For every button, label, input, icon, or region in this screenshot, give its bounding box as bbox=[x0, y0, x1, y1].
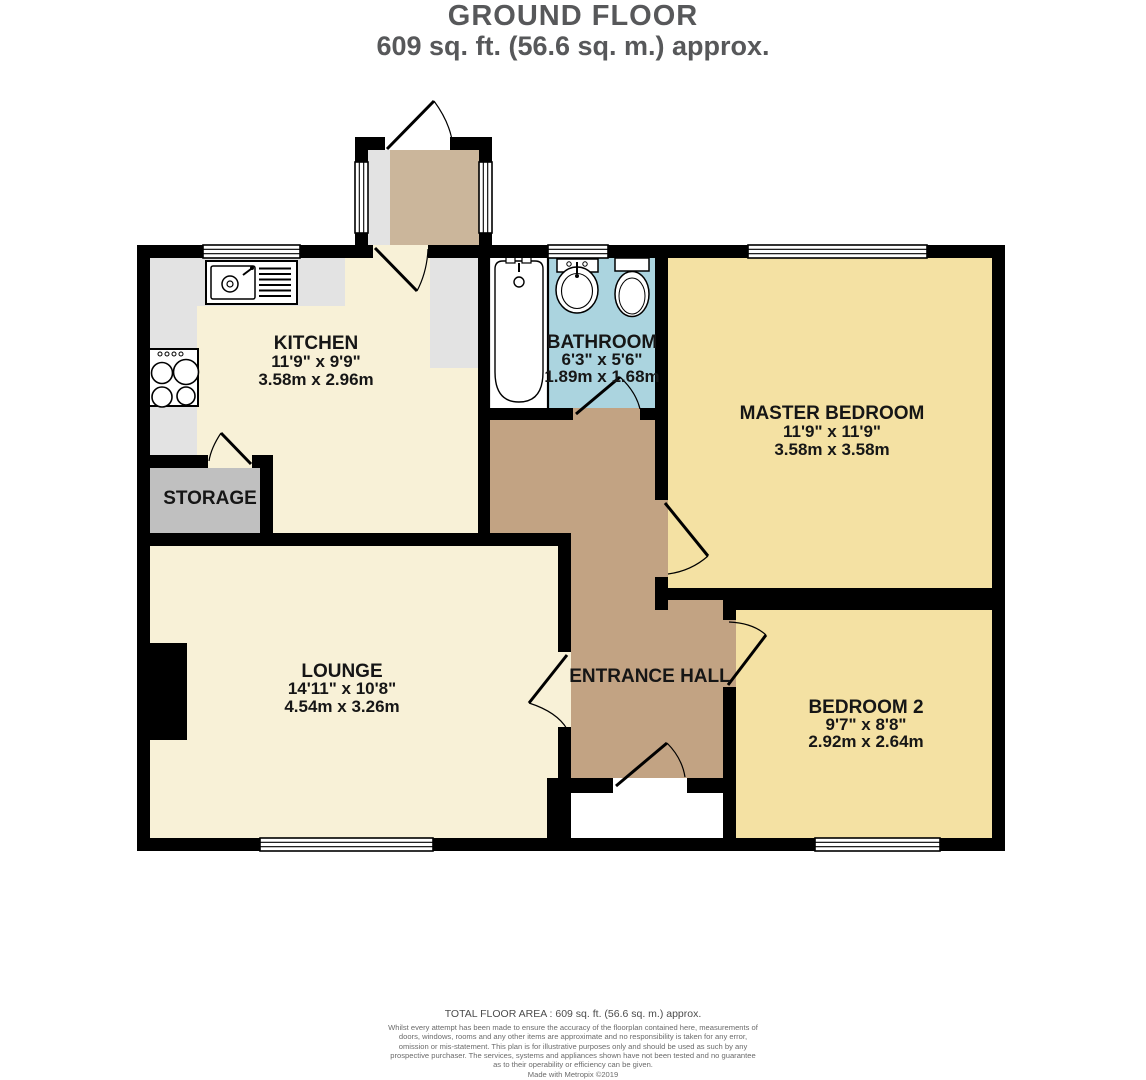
floorplan-drawing: KITCHEN 11'9" x 9'9" 3.58m x 2.96m BATHR… bbox=[0, 0, 1146, 1080]
kitchen-dims-imperial: 11'9" x 9'9" bbox=[271, 352, 360, 371]
bathroom-dims-metric: 1.89m x 1.68m bbox=[544, 367, 659, 386]
master-bedroom-dims-metric: 3.58m x 3.58m bbox=[774, 440, 889, 459]
storage-label: STORAGE bbox=[163, 488, 257, 509]
bathtub-icon bbox=[489, 255, 548, 410]
chimney-breast bbox=[148, 643, 187, 740]
basin-icon bbox=[556, 259, 598, 313]
hob-icon bbox=[147, 349, 199, 407]
bedroom-2-window-icon bbox=[815, 838, 940, 851]
master-bedroom-label: MASTER BEDROOM bbox=[740, 403, 925, 424]
footer: TOTAL FLOOR AREA : 609 sq. ft. (56.6 sq.… bbox=[0, 1008, 1146, 1079]
metropix-credit: Made with Metropix ©2019 bbox=[0, 1070, 1146, 1079]
disclaimer-text: Whilst every attempt has been made to en… bbox=[386, 1023, 760, 1069]
kitchen-dims-metric: 3.58m x 2.96m bbox=[258, 370, 373, 389]
porch-right-window-icon bbox=[479, 162, 492, 233]
porch-left-window-icon bbox=[355, 162, 368, 233]
sink-icon bbox=[206, 261, 297, 304]
total-floor-area: TOTAL FLOOR AREA : 609 sq. ft. (56.6 sq.… bbox=[0, 1008, 1146, 1020]
bathroom-window-icon bbox=[548, 245, 608, 258]
front-porch-door bbox=[385, 101, 453, 150]
lounge-window-icon bbox=[260, 838, 433, 851]
master-bedroom-dims-imperial: 11'9" x 11'9" bbox=[783, 422, 881, 441]
toilet-icon bbox=[615, 258, 649, 317]
counter-right bbox=[430, 258, 478, 368]
bedroom-2-dims-metric: 2.92m x 2.64m bbox=[808, 732, 923, 751]
master-bedroom-window-icon bbox=[748, 245, 927, 258]
lounge-dims-imperial: 14'11" x 10'8" bbox=[288, 679, 396, 698]
kitchen-window-icon bbox=[203, 245, 300, 258]
floorplan-page: GROUND FLOOR 609 sq. ft. (56.6 sq. m.) a… bbox=[0, 0, 1146, 1080]
lounge-dims-metric: 4.54m x 3.26m bbox=[284, 697, 399, 716]
kitchen-label: KITCHEN bbox=[274, 333, 358, 354]
entrance-hall-label: ENTRANCE HALL bbox=[569, 666, 731, 687]
porch-step bbox=[366, 150, 390, 245]
